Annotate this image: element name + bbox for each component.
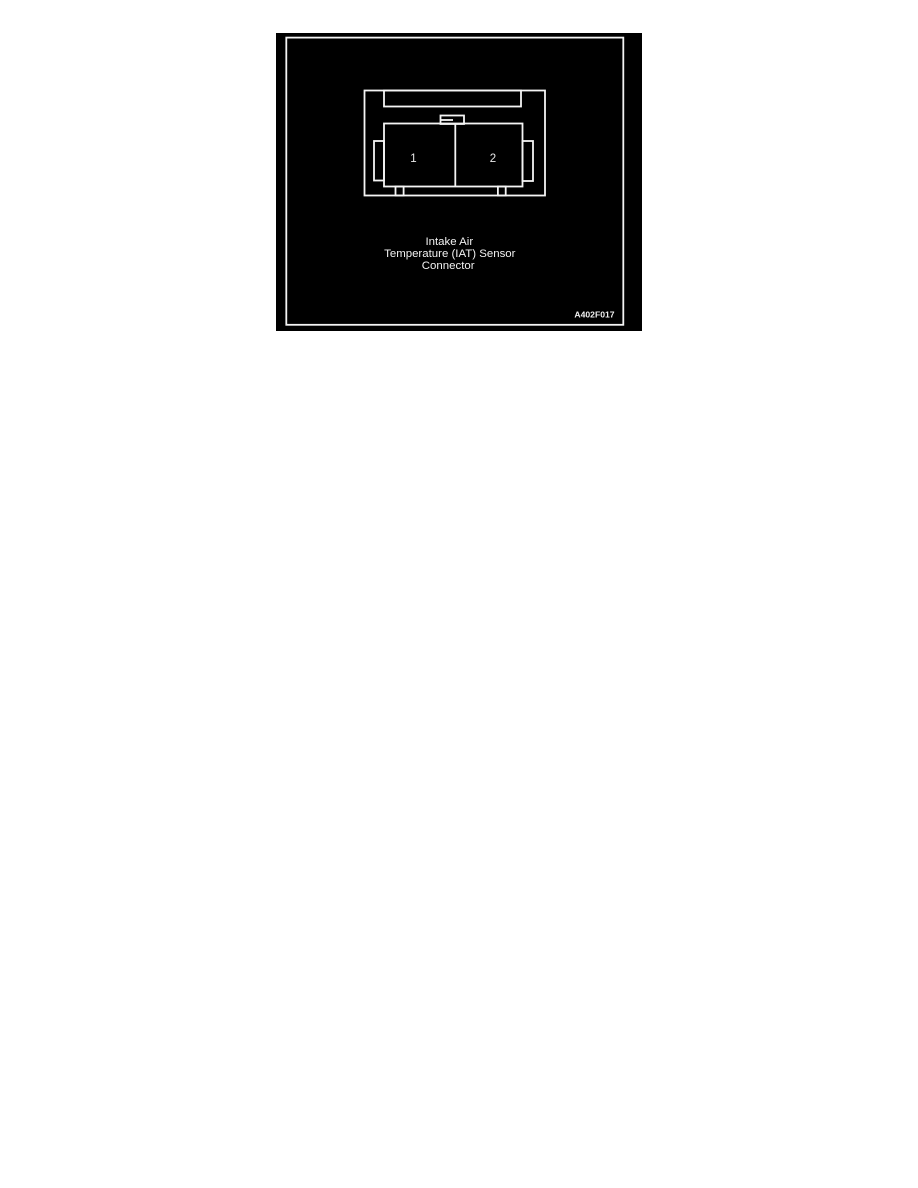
svg-text:Connector: Connector xyxy=(422,260,475,272)
svg-text:Temperature (IAT) Sensor: Temperature (IAT) Sensor xyxy=(384,248,516,260)
svg-text:A402F017: A402F017 xyxy=(574,310,614,320)
svg-text:1: 1 xyxy=(410,153,416,165)
svg-text:Intake Air: Intake Air xyxy=(425,236,473,248)
svg-text:2: 2 xyxy=(490,153,496,165)
